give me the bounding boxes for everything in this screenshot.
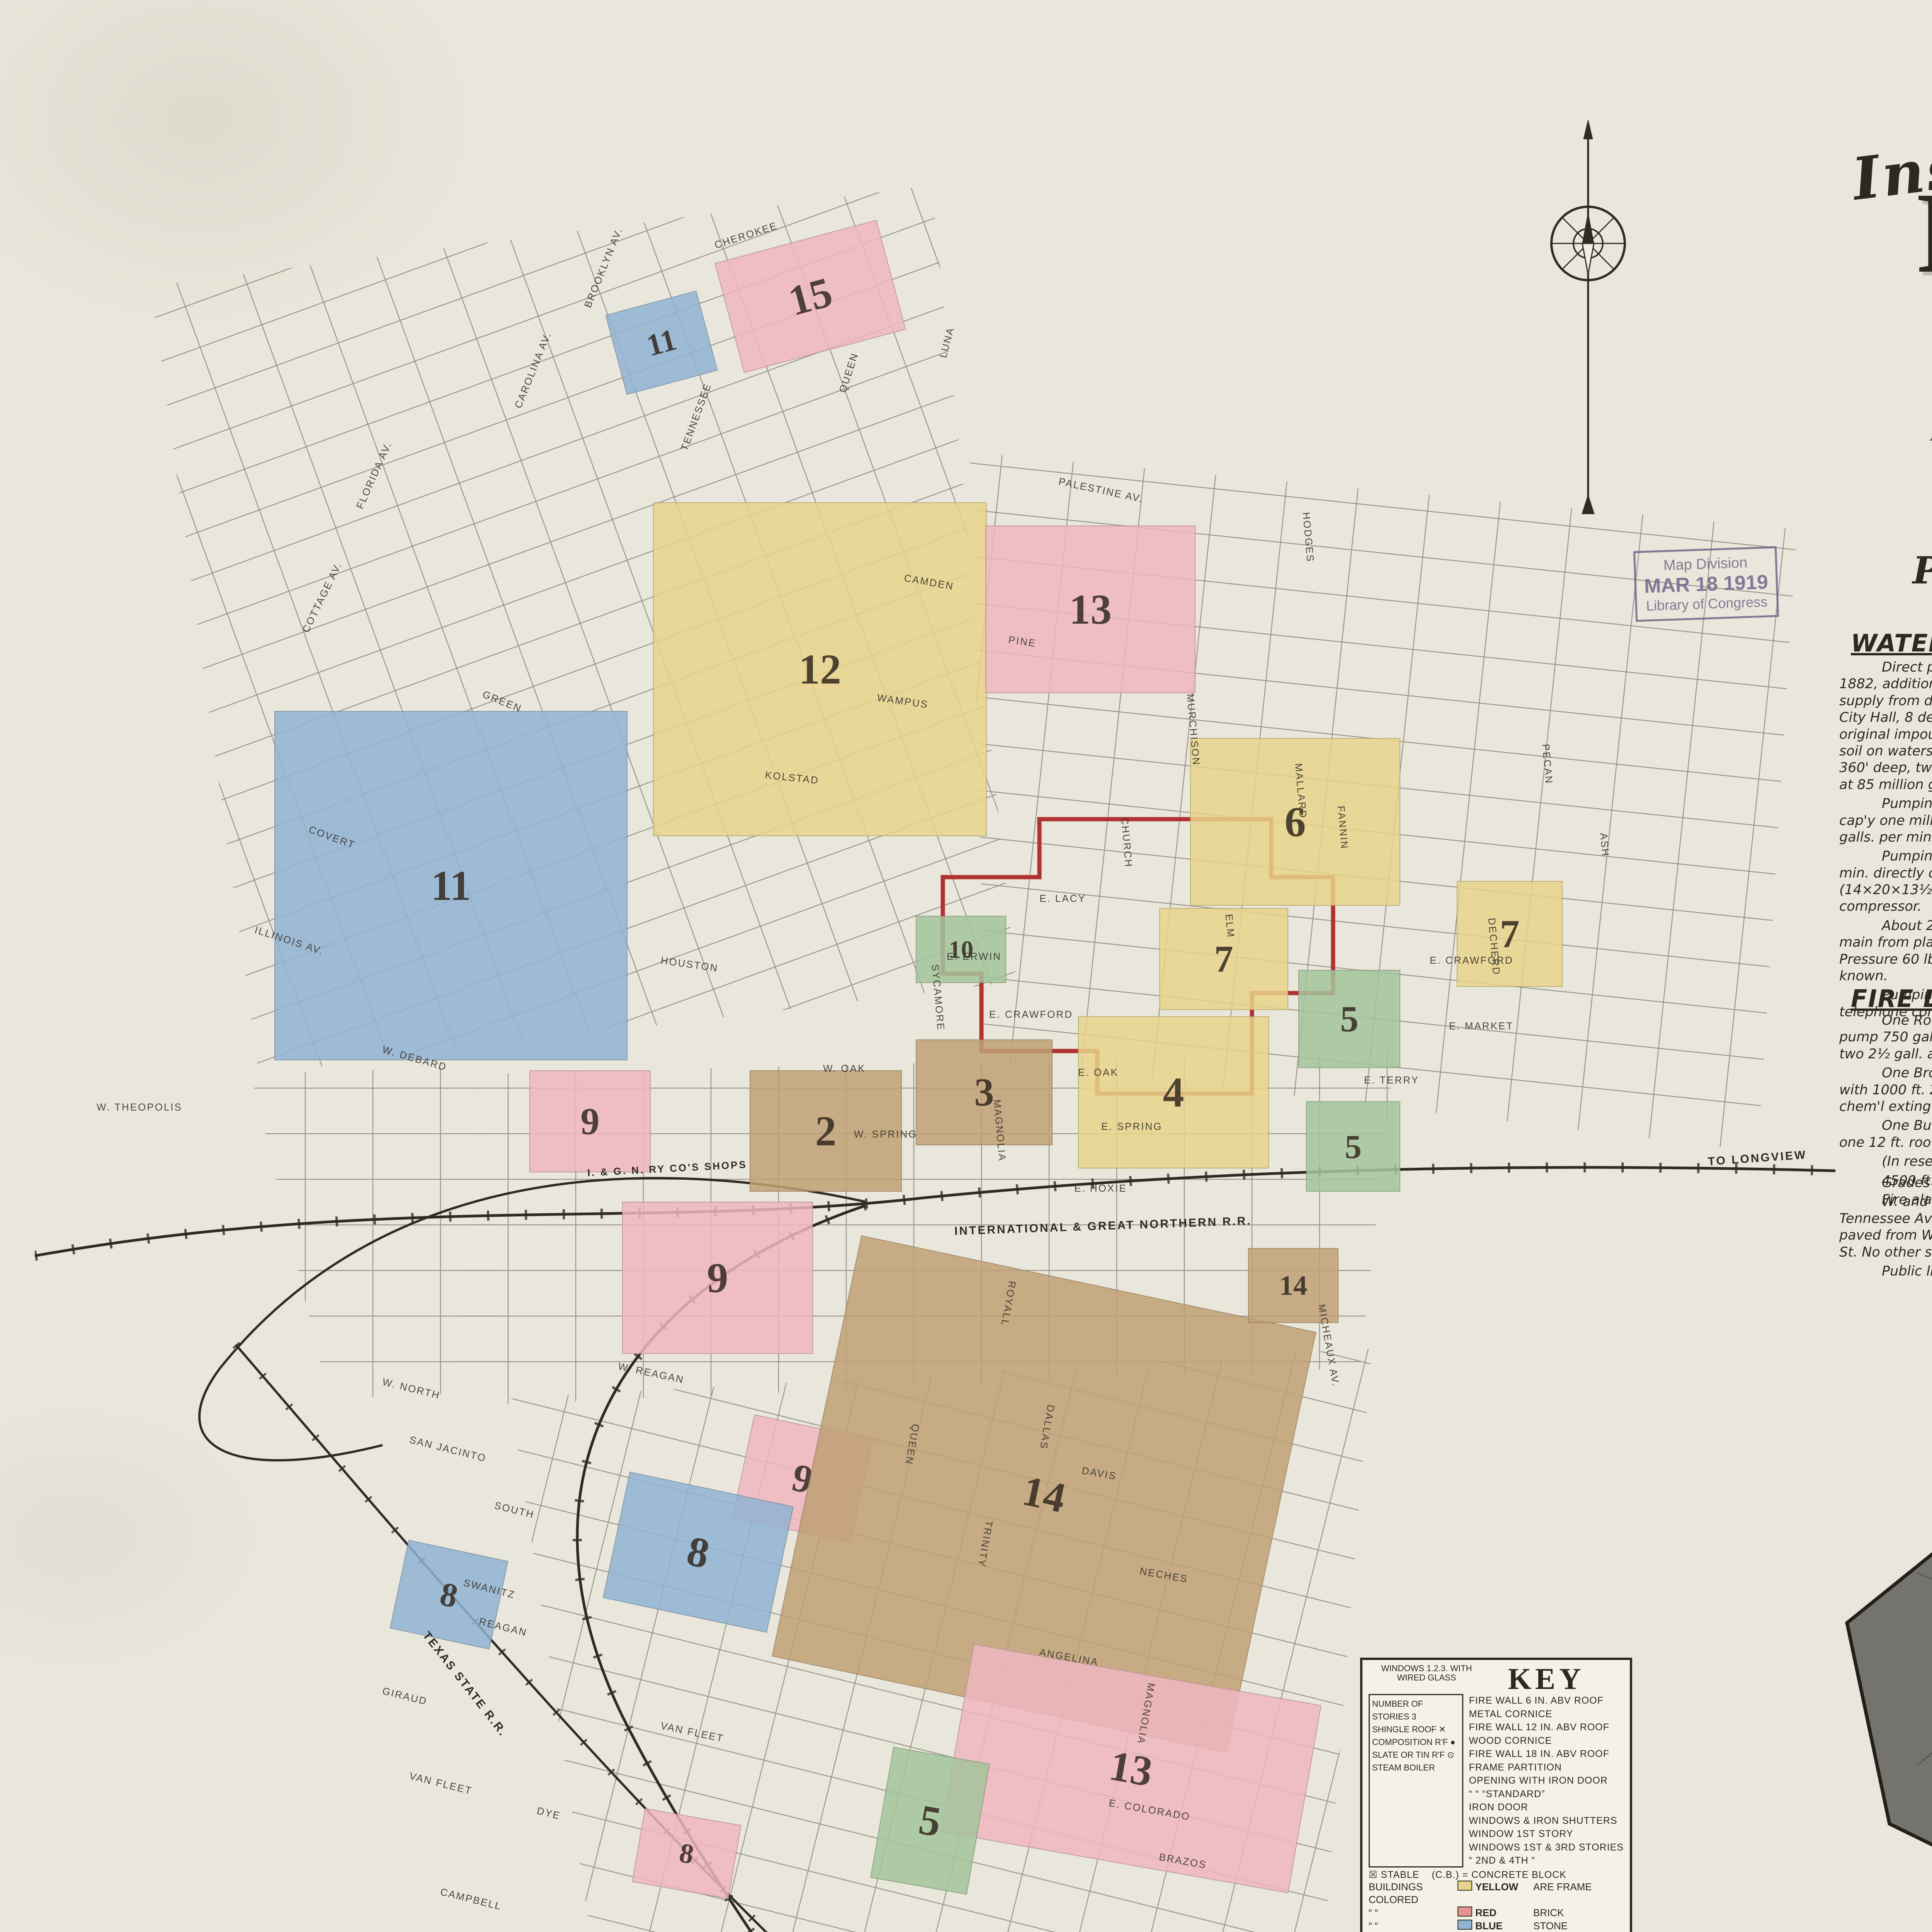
key-color-swatch (1458, 1920, 1472, 1930)
key-stable-cb: ☒ STABLE (C.B.) = CONCRETE BLOCK (1369, 1869, 1624, 1881)
library-of-congress-stamp: Map Division MAR 18 1919 Library of Cong… (1633, 546, 1779, 622)
key-color-legend: BUILDINGS COLOREDYELLOWARE FRAME“ “REDBR… (1369, 1881, 1624, 1932)
population-note: Population 15.000. (1913, 549, 1932, 592)
key-color-row: “ “BLUESTONE (1369, 1920, 1624, 1932)
key-color-swatch (1458, 1906, 1472, 1917)
map-key-legend: WINDOWS 1.2.3. WITH WIRED GLASS KEY NUMB… (1360, 1658, 1632, 1932)
title-city: PALESTINE (1917, 166, 1932, 299)
key-diagram: NUMBER OF STORIES 3SHINGLE ROOF ✕COMPOSI… (1369, 1694, 1463, 1867)
title-county: ANDERSON CO. (1927, 399, 1932, 446)
inset-canvas (1801, 1457, 1932, 1932)
fire-department-heading: FIRE DEPARTMENT, Eight paid men. (1851, 985, 1932, 1013)
water-facilities-text: Direct pressure system of water works ow… (1839, 659, 1932, 1023)
water-facilities-heading: WATER FACILITIES (1851, 629, 1932, 657)
location-inset-map: GULF OF MEXICO LOCATION OF THIS TOWN AS … (1801, 1457, 1932, 1932)
inset-caption: LOCATION OF THIS TOWN AS ABOVE UNDERLINE… (1893, 1926, 1932, 1932)
key-wired-note: WINDOWS 1.2.3. WITH WIRED GLASS (1369, 1664, 1485, 1682)
key-title: KEY (1508, 1664, 1585, 1694)
compass-rose-icon (1530, 116, 1646, 522)
key-color-row: “ “REDBRICK (1369, 1906, 1624, 1920)
key-color-row: BUILDINGS COLOREDYELLOWARE FRAME (1369, 1881, 1624, 1907)
key-color-swatch (1458, 1881, 1472, 1891)
grades-paving-text: Grades level in business section, hilly … (1839, 1175, 1932, 1282)
key-symbol-lines: FIRE WALL 6 IN. ABV ROOFMETAL CORNICEFIR… (1469, 1694, 1624, 1867)
sanborn-map-sheet: 14 Sheets (2547) (0, 0, 1932, 1932)
